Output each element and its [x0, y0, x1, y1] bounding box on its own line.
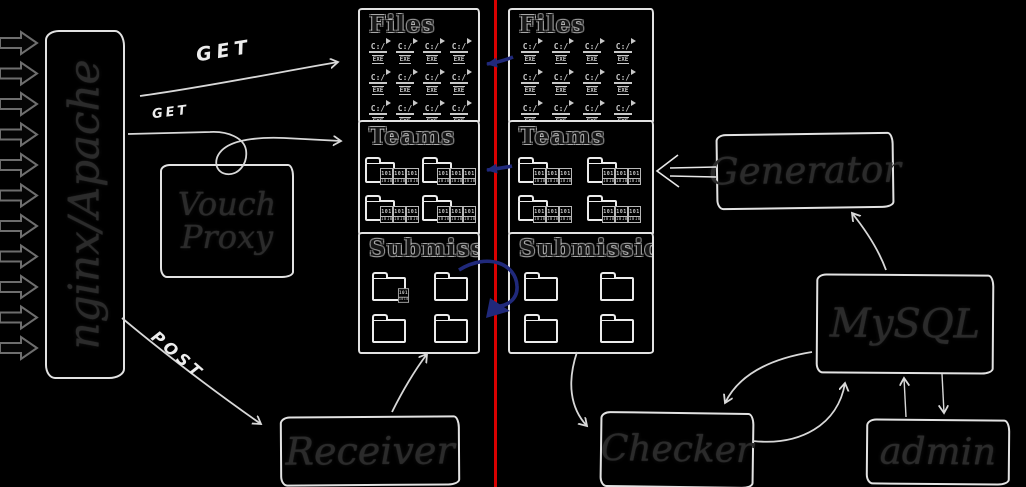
- binary-file-icon-strip: 1010: [464, 216, 475, 222]
- panel-teams-right-title: Teams: [519, 123, 605, 150]
- binary-file-icon: 1011010: [450, 168, 463, 185]
- exe-file-icon: C:/EXE: [395, 71, 415, 96]
- panel-files-right: Files C:/EXEC:/EXEC:/EXEC:/EXEC:/EXEC:/E…: [508, 8, 654, 124]
- exe-file-icon-ext: EXE: [524, 55, 537, 64]
- submissions-right-grid: [524, 270, 640, 354]
- binary-file-icon: 1011010: [602, 168, 615, 185]
- exe-file-icon-label: C:/: [369, 40, 387, 53]
- exe-file-icon-label: C:/: [423, 40, 441, 53]
- folder-icon: [524, 319, 558, 343]
- binary-file-icon: 1011010: [398, 288, 409, 302]
- binary-file-icon: 1011010: [615, 206, 628, 223]
- binary-file-icon-bits: 101: [547, 169, 558, 178]
- exe-file-icon-label: C:/: [583, 40, 601, 53]
- teams-right-grid: 1011010101101010110101011010101101010110…: [518, 153, 646, 236]
- binary-file-icon-bits: 101: [603, 207, 614, 216]
- exe-file-icon: C:/EXE: [422, 40, 442, 65]
- folder-icon: 1011010: [372, 277, 406, 301]
- node-mysql: MySQL: [816, 273, 995, 374]
- exe-file-icon-label: C:/: [614, 102, 632, 115]
- binary-file-icon: 1011010: [546, 206, 559, 223]
- exe-file-icon-label: C:/: [583, 71, 601, 84]
- exe-file-icon: C:/EXE: [520, 40, 540, 65]
- exe-file-icon: C:/EXE: [422, 71, 442, 96]
- arrow-submissions-to-checker: [571, 352, 587, 426]
- exe-file-icon-ext: EXE: [524, 86, 537, 95]
- binary-file-icon-strip: 1010: [547, 216, 558, 222]
- exe-file-icon: C:/EXE: [395, 40, 415, 65]
- node-receiver-label: Receiver: [282, 417, 458, 484]
- folder-icon: [434, 319, 468, 343]
- binary-file-icon-strip: 1010: [381, 178, 392, 184]
- exe-file-icon: C:/EXE: [551, 71, 571, 96]
- exe-file-icon-label: C:/: [369, 102, 387, 115]
- binary-file-icon-strip: 1010: [394, 216, 405, 222]
- exe-file-icon-label: C:/: [369, 71, 387, 84]
- team-item: 101101010110101011010: [365, 153, 419, 187]
- exe-file-icon-ext: EXE: [453, 86, 466, 95]
- exe-file-icon-label: C:/: [396, 40, 414, 53]
- binary-file-icon: 1011010: [437, 168, 450, 185]
- team-item: 101101010110101011010: [587, 191, 641, 225]
- exe-file-icon-ext: EXE: [372, 55, 385, 64]
- node-nginx-apache: nginx/Apache: [45, 30, 125, 379]
- binary-file-icon: 1011010: [628, 206, 641, 223]
- red-divider-line: [494, 0, 497, 487]
- exe-file-icon-ext: EXE: [426, 55, 439, 64]
- exe-file-icon: C:/EXE: [613, 71, 633, 96]
- binary-file-icon-bits: 101: [534, 207, 545, 216]
- exe-file-icon: C:/EXE: [449, 40, 469, 65]
- exe-file-icon-label: C:/: [614, 71, 632, 84]
- binary-file-icon-strip: 1010: [399, 297, 408, 302]
- binary-file-group: 101101010110101011010: [437, 206, 476, 223]
- exe-file-icon-ext: EXE: [586, 86, 599, 95]
- binary-file-icon: 1011010: [406, 168, 419, 185]
- binary-file-icon-bits: 101: [616, 207, 627, 216]
- panel-teams-left: Teams 1011010101101010110101011010101101…: [358, 120, 480, 236]
- node-mysql-label: MySQL: [818, 275, 993, 372]
- binary-file-icon: 1011010: [380, 206, 393, 223]
- arrow-checker-to-mysql: [753, 383, 845, 442]
- panel-submissions-left: Submissio 1011010: [358, 232, 480, 354]
- binary-file-icon: 1011010: [463, 168, 476, 185]
- binary-file-icon-strip: 1010: [629, 216, 640, 222]
- binary-file-icon-bits: 101: [464, 169, 475, 178]
- binary-file-icon-bits: 101: [451, 169, 462, 178]
- binary-file-icon: 1011010: [406, 206, 419, 223]
- binary-file-icon-strip: 1010: [616, 178, 627, 184]
- binary-file-icon: 1011010: [393, 168, 406, 185]
- panel-files-right-title: Files: [519, 11, 585, 38]
- binary-file-icon-strip: 1010: [394, 178, 405, 184]
- exe-file-icon: C:/EXE: [582, 40, 602, 65]
- incoming-traffic-arrow: [0, 93, 37, 115]
- panel-submissions-left-title: Submissio: [369, 235, 480, 262]
- binary-file-icon-strip: 1010: [438, 178, 449, 184]
- exe-file-icon: C:/EXE: [520, 71, 540, 96]
- binary-file-icon-bits: 101: [394, 169, 405, 178]
- arrow-admin-to-mysql: [904, 378, 906, 417]
- binary-file-icon: 1011010: [546, 168, 559, 185]
- arrow-mysql-to-checker: [725, 352, 812, 403]
- exe-file-icon-label: C:/: [423, 102, 441, 115]
- incoming-traffic-arrow: [0, 307, 37, 329]
- binary-file-icon: 1011010: [602, 206, 615, 223]
- exe-file-icon-ext: EXE: [399, 86, 412, 95]
- binary-file-icon-bits: 101: [381, 169, 392, 178]
- binary-file-icon: 1011010: [450, 206, 463, 223]
- binary-file-icon: 1011010: [393, 206, 406, 223]
- exe-file-icon-ext: EXE: [399, 55, 412, 64]
- exe-file-icon-label: C:/: [583, 102, 601, 115]
- binary-file-icon-bits: 101: [560, 207, 571, 216]
- binary-file-icon-strip: 1010: [451, 216, 462, 222]
- binary-file-icon: 1011010: [559, 206, 572, 223]
- binary-file-icon-strip: 1010: [464, 178, 475, 184]
- team-item: 101101010110101011010: [365, 191, 419, 225]
- folder-icon: [434, 277, 468, 301]
- binary-file-icon-bits: 101: [399, 289, 408, 297]
- node-checker-label: Checker: [602, 413, 753, 487]
- binary-file-icon-strip: 1010: [534, 178, 545, 184]
- binary-file-icon-strip: 1010: [451, 178, 462, 184]
- node-vouch-proxy: Vouch Proxy: [160, 164, 294, 278]
- binary-file-icon-strip: 1010: [629, 178, 640, 184]
- binary-file-icon-bits: 101: [394, 207, 405, 216]
- exe-file-icon-ext: EXE: [426, 86, 439, 95]
- binary-file-icon-bits: 101: [464, 207, 475, 216]
- binary-file-icon: 1011010: [533, 206, 546, 223]
- arrow-mysql-to-admin: [942, 374, 944, 413]
- exe-file-icon-ext: EXE: [453, 55, 466, 64]
- arrow-generator-to-teams: [657, 155, 716, 187]
- binary-file-icon-strip: 1010: [407, 216, 418, 222]
- exe-file-icon-label: C:/: [521, 71, 539, 84]
- exe-file-icon: C:/EXE: [449, 71, 469, 96]
- panel-files-left-title: Files: [369, 11, 435, 38]
- binary-file-group: 101101010110101011010: [602, 168, 641, 185]
- submissions-left-grid: 1011010: [372, 270, 470, 354]
- incoming-traffic-arrow: [0, 32, 37, 54]
- node-admin-label: admin: [868, 420, 1009, 483]
- binary-file-icon-bits: 101: [603, 169, 614, 178]
- folder-icon: [600, 319, 634, 343]
- binary-file-icon-bits: 101: [629, 207, 640, 216]
- exe-file-icon-ext: EXE: [372, 86, 385, 95]
- node-generator: Generator: [715, 132, 894, 210]
- arrow-receiver-to-submissions: [392, 354, 427, 412]
- binary-file-icon-bits: 101: [438, 169, 449, 178]
- binary-file-group: 101101010110101011010: [380, 206, 419, 223]
- binary-file-icon-bits: 101: [547, 207, 558, 216]
- panel-teams-left-title: Teams: [369, 123, 455, 150]
- folder-icon: [372, 319, 406, 343]
- binary-file-icon: 1011010: [615, 168, 628, 185]
- exe-file-icon-label: C:/: [396, 71, 414, 84]
- exe-file-icon-ext: EXE: [555, 55, 568, 64]
- arrow-nginx-to-files: [140, 62, 338, 96]
- node-checker: Checker: [599, 411, 754, 487]
- teams-left-grid: 1011010101101010110101011010101101010110…: [365, 153, 477, 236]
- binary-file-icon-bits: 101: [560, 169, 571, 178]
- arrow-mysql-to-generator: [852, 213, 886, 270]
- panel-teams-right: Teams 1011010101101010110101011010101101…: [508, 120, 654, 236]
- panel-submissions-right: Submissions: [508, 232, 654, 354]
- exe-file-icon-label: C:/: [552, 40, 570, 53]
- binary-file-icon-bits: 101: [438, 207, 449, 216]
- binary-file-icon-bits: 101: [451, 207, 462, 216]
- binary-file-icon-strip: 1010: [616, 216, 627, 222]
- incoming-traffic-arrow: [0, 276, 37, 298]
- incoming-traffic-arrow: [0, 337, 37, 359]
- binary-file-icon-bits: 101: [629, 169, 640, 178]
- binary-file-icon: 1011010: [559, 168, 572, 185]
- exe-file-icon-label: C:/: [552, 71, 570, 84]
- exe-file-icon: C:/EXE: [368, 40, 388, 65]
- folder-icon: [524, 277, 558, 301]
- binary-file-icon-strip: 1010: [603, 178, 614, 184]
- edge-label-post: POST: [148, 327, 209, 383]
- incoming-traffic-arrow: [0, 246, 37, 268]
- binary-file-icon-bits: 101: [381, 207, 392, 216]
- binary-file-icon: 1011010: [628, 168, 641, 185]
- binary-file-icon-bits: 101: [407, 169, 418, 178]
- exe-file-icon-label: C:/: [614, 40, 632, 53]
- exe-file-icon-label: C:/: [521, 102, 539, 115]
- binary-file-icon-strip: 1010: [560, 178, 571, 184]
- binary-file-group: 101101010110101011010: [533, 168, 572, 185]
- binary-file-icon-bits: 101: [534, 169, 545, 178]
- exe-file-icon-label: C:/: [450, 102, 468, 115]
- exe-file-icon-label: C:/: [396, 102, 414, 115]
- exe-file-icon: C:/EXE: [582, 71, 602, 96]
- binary-file-group: 101101010110101011010: [533, 206, 572, 223]
- binary-file-icon-strip: 1010: [534, 216, 545, 222]
- binary-file-group: 101101010110101011010: [602, 206, 641, 223]
- panel-submissions-right-title: Submissions: [519, 235, 654, 262]
- exe-file-icon-ext: EXE: [617, 86, 630, 95]
- binary-file-icon: 1011010: [463, 206, 476, 223]
- folder-icon: [600, 277, 634, 301]
- exe-file-icon: C:/EXE: [368, 71, 388, 96]
- binary-file-group: 101101010110101011010: [380, 168, 419, 185]
- exe-file-icon-ext: EXE: [586, 55, 599, 64]
- exe-file-icon-label: C:/: [423, 71, 441, 84]
- binary-file-icon: 1011010: [533, 168, 546, 185]
- panel-files-left: Files C:/EXEC:/EXEC:/EXEC:/EXEC:/EXEC:/E…: [358, 8, 480, 124]
- binary-file-icon-strip: 1010: [547, 178, 558, 184]
- team-item: 101101010110101011010: [518, 191, 572, 225]
- architecture-diagram: nginx/Apache Vouch Proxy Receiver Genera…: [0, 0, 1026, 487]
- incoming-traffic-arrow: [0, 63, 37, 85]
- binary-file-icon: 1011010: [437, 206, 450, 223]
- node-admin: admin: [866, 418, 1011, 485]
- binary-file-icon: 1011010: [380, 168, 393, 185]
- binary-file-icon-strip: 1010: [560, 216, 571, 222]
- exe-file-icon: C:/EXE: [551, 40, 571, 65]
- binary-file-icon-bits: 101: [407, 207, 418, 216]
- team-item: 101101010110101011010: [518, 153, 572, 187]
- team-item: 101101010110101011010: [422, 191, 476, 225]
- node-generator-label: Generator: [718, 134, 893, 208]
- files-left-grid: C:/EXEC:/EXEC:/EXEC:/EXEC:/EXEC:/EXEC:/E…: [368, 40, 474, 124]
- team-item: 101101010110101011010: [422, 153, 476, 187]
- binary-file-group: 101101010110101011010: [437, 168, 476, 185]
- binary-file-icon-strip: 1010: [407, 178, 418, 184]
- exe-file-icon: C:/EXE: [613, 40, 633, 65]
- binary-file-icon-bits: 101: [616, 169, 627, 178]
- node-vouch-proxy-label: Vouch Proxy: [162, 166, 292, 276]
- exe-file-icon-ext: EXE: [617, 55, 630, 64]
- team-item: 101101010110101011010: [587, 153, 641, 187]
- exe-file-icon-label: C:/: [552, 102, 570, 115]
- incoming-traffic-arrow: [0, 124, 37, 146]
- files-right-grid: C:/EXEC:/EXEC:/EXEC:/EXEC:/EXEC:/EXEC:/E…: [520, 40, 646, 124]
- edge-label-get-files: GET: [195, 36, 254, 67]
- node-receiver: Receiver: [280, 415, 460, 486]
- binary-file-icon-strip: 1010: [438, 216, 449, 222]
- exe-file-icon-label: C:/: [450, 40, 468, 53]
- exe-file-icon-label: C:/: [450, 71, 468, 84]
- binary-file-icon-strip: 1010: [381, 216, 392, 222]
- edge-label-get-teams: GET: [151, 103, 190, 122]
- exe-file-icon-ext: EXE: [555, 86, 568, 95]
- binary-file-icon-strip: 1010: [603, 216, 614, 222]
- exe-file-icon-label: C:/: [521, 40, 539, 53]
